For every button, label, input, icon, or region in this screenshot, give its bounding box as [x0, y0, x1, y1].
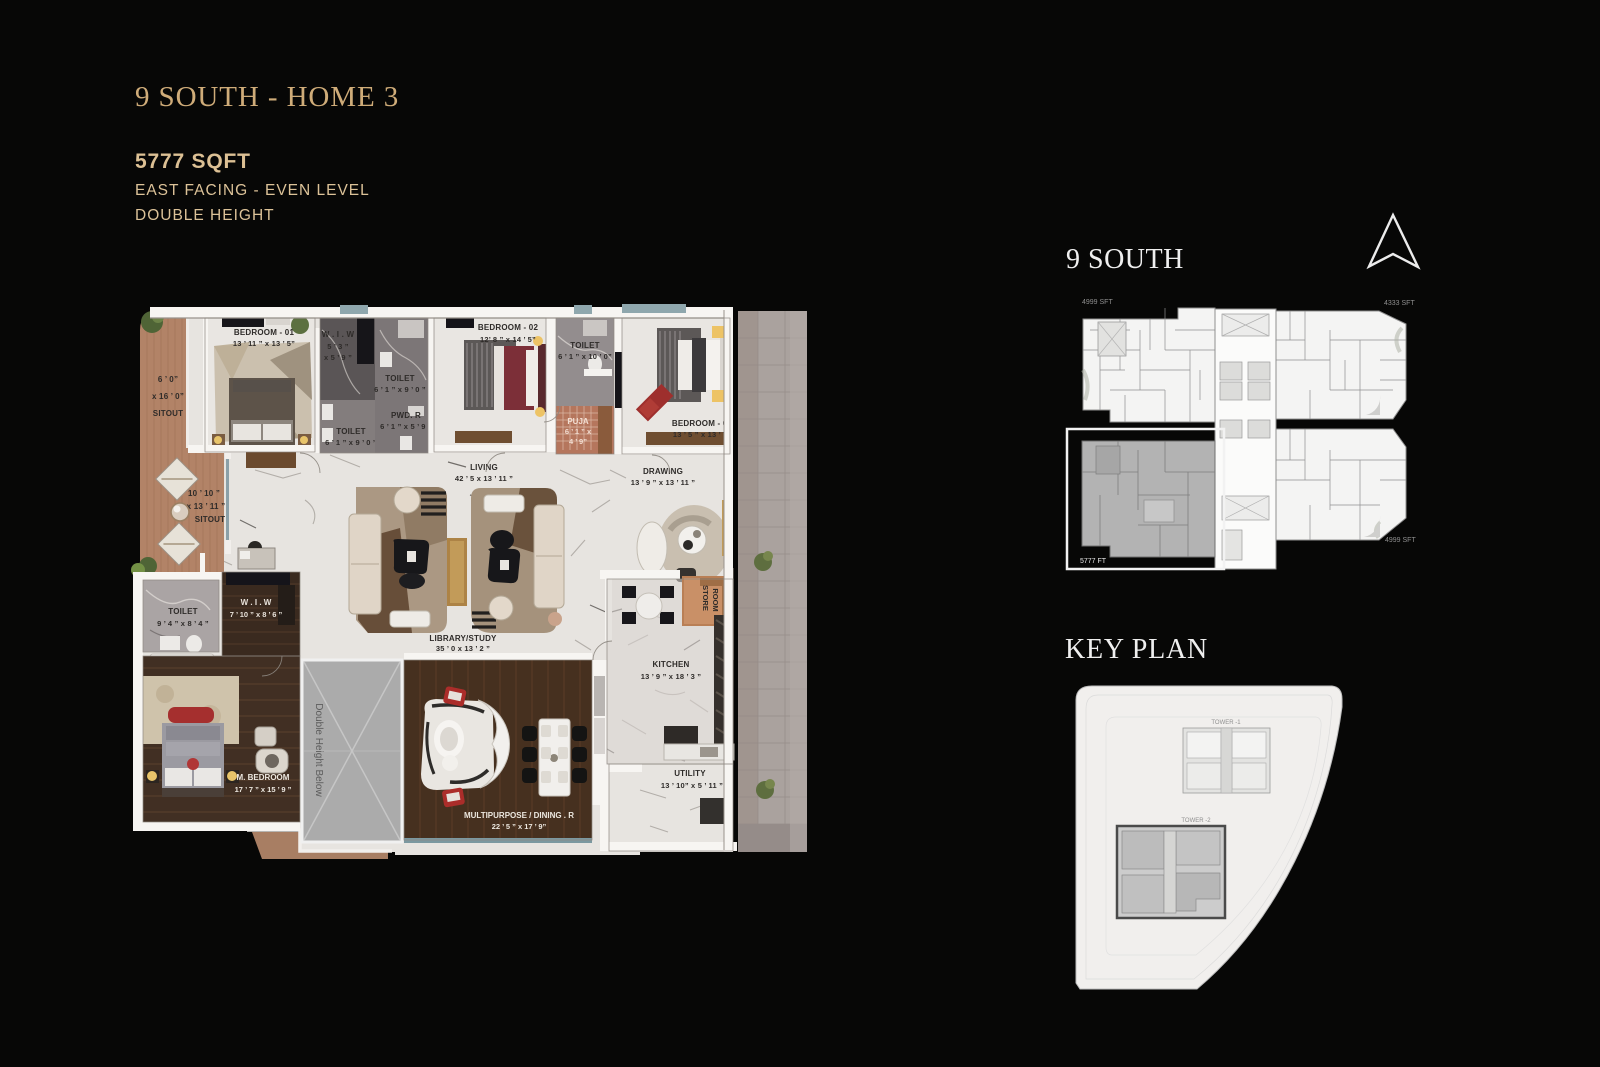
- svg-text:PWD. R: PWD. R: [391, 411, 421, 420]
- svg-text:4999 SFT: 4999 SFT: [1385, 537, 1416, 544]
- svg-text:22 ’ 5 ” x 17 ’ 9”: 22 ’ 5 ” x 17 ’ 9”: [492, 822, 547, 831]
- svg-text:6 ’ 1 ” x 9 ’ 0 ”: 6 ’ 1 ” x 9 ’ 0 ”: [374, 385, 426, 394]
- svg-text:13 ’ 10” x 5 ’ 11 ”: 13 ’ 10” x 5 ’ 11 ”: [661, 781, 723, 790]
- svg-text:x 5 ’ 9 ”: x 5 ’ 9 ”: [324, 353, 352, 362]
- svg-text:BEDROOM - 02: BEDROOM - 02: [478, 323, 539, 332]
- svg-text:4333 SFT: 4333 SFT: [1384, 300, 1415, 307]
- svg-text:13 ’ 11 ” x 13 ’ 5”: 13 ’ 11 ” x 13 ’ 5”: [233, 339, 295, 348]
- svg-text:M. BEDROOM: M. BEDROOM: [237, 773, 290, 782]
- svg-text:6 ’ 1 ” x 10 ’ 0”: 6 ’ 1 ” x 10 ’ 0”: [558, 352, 612, 361]
- svg-text:SITOUT: SITOUT: [153, 409, 183, 418]
- svg-text:TOILET: TOILET: [570, 341, 600, 350]
- svg-text:4 ’ 9”: 4 ’ 9”: [569, 437, 587, 446]
- svg-text:13 ’ 9 ” x 18 ’ 3 ”: 13 ’ 9 ” x 18 ’ 3 ”: [641, 672, 702, 681]
- svg-text:LIBRARY/STUDY: LIBRARY/STUDY: [429, 634, 497, 643]
- svg-text:7 ’ 10 ” x 8 ’ 6 ”: 7 ’ 10 ” x 8 ’ 6 ”: [230, 610, 283, 619]
- svg-text:LIVING: LIVING: [470, 463, 498, 472]
- svg-text:35 ’ 0 x 13 ’ 2 ”: 35 ’ 0 x 13 ’ 2 ”: [436, 644, 490, 653]
- svg-text:x 16 ’ 0”: x 16 ’ 0”: [152, 392, 184, 401]
- svg-text:Double Height Below: Double Height Below: [313, 703, 324, 797]
- svg-text:4999 SFT: 4999 SFT: [1082, 299, 1113, 306]
- svg-text:42 ’ 5 x 13 ’ 11 ”: 42 ’ 5 x 13 ’ 11 ”: [455, 474, 513, 483]
- svg-text:BEDROOM - 01: BEDROOM - 01: [234, 328, 295, 337]
- svg-text:9 SOUTH - HOME 3: 9 SOUTH - HOME 3: [135, 81, 399, 113]
- svg-text:9 ’ 4 ” x 8 ’ 4 ”: 9 ’ 4 ” x 8 ’ 4 ”: [157, 619, 209, 628]
- svg-text:BEDROOM - 03: BEDROOM - 03: [672, 419, 733, 428]
- svg-text:5777 FT: 5777 FT: [1080, 558, 1107, 565]
- svg-text:TOWER -2: TOWER -2: [1181, 818, 1211, 824]
- svg-text:6 ’ 1 ” x 5 ’ 9 ”: 6 ’ 1 ” x 5 ’ 9 ”: [380, 422, 432, 431]
- svg-text:5 ’ 3 ”: 5 ’ 3 ”: [327, 342, 348, 351]
- svg-text:W . I . W: W . I . W: [322, 330, 355, 339]
- svg-text:12’ 8 ” x 14 ’ 5”: 12’ 8 ” x 14 ’ 5”: [480, 335, 536, 344]
- svg-text:MULTIPURPOSE / DINING . R: MULTIPURPOSE / DINING . R: [464, 811, 574, 820]
- svg-text:DOUBLE HEIGHT: DOUBLE HEIGHT: [135, 207, 275, 224]
- svg-text:KITCHEN: KITCHEN: [653, 660, 690, 669]
- svg-text:6 ’ 1 ” x 9 ’ 0 ”: 6 ’ 1 ” x 9 ’ 0 ”: [325, 438, 377, 447]
- svg-text:10 ’ 10 ”: 10 ’ 10 ”: [188, 489, 220, 498]
- svg-text:PUJA: PUJA: [567, 417, 589, 426]
- svg-text:SITOUT: SITOUT: [195, 515, 225, 524]
- svg-text:13 ’ 9 ” x 13 ’ 11 ”: 13 ’ 9 ” x 13 ’ 11 ”: [631, 478, 696, 487]
- svg-text:DRAWING: DRAWING: [643, 467, 683, 476]
- svg-text:9 SOUTH: 9 SOUTH: [1066, 244, 1184, 275]
- svg-text:TOILET: TOILET: [168, 607, 198, 616]
- svg-text:5777 SQFT: 5777 SQFT: [135, 150, 251, 173]
- svg-text:KEY PLAN: KEY PLAN: [1065, 634, 1208, 665]
- svg-text:x 13 ’ 11 ”: x 13 ’ 11 ”: [187, 502, 226, 511]
- svg-text:TOILET: TOILET: [336, 427, 366, 436]
- svg-text:UTILITY: UTILITY: [674, 769, 706, 778]
- svg-text:6 ’ 0”: 6 ’ 0”: [158, 375, 178, 384]
- svg-text:6 ’ 1 ” x: 6 ’ 1 ” x: [565, 427, 592, 436]
- svg-text:TOILET: TOILET: [385, 374, 415, 383]
- svg-text:17 ’ 7 ” x 15 ’ 9 ”: 17 ’ 7 ” x 15 ’ 9 ”: [235, 785, 292, 794]
- svg-text:W . I . W: W . I . W: [241, 598, 272, 607]
- svg-text:STORE: STORE: [701, 585, 710, 611]
- svg-text:ROOM: ROOM: [711, 588, 720, 611]
- svg-text:EAST FACING - EVEN LEVEL: EAST FACING - EVEN LEVEL: [135, 182, 370, 199]
- svg-text:TOWER -1: TOWER -1: [1211, 720, 1241, 726]
- svg-text:13 ’ 5 ” x 13 ’ 7”: 13 ’ 5 ” x 13 ’ 7”: [673, 430, 731, 439]
